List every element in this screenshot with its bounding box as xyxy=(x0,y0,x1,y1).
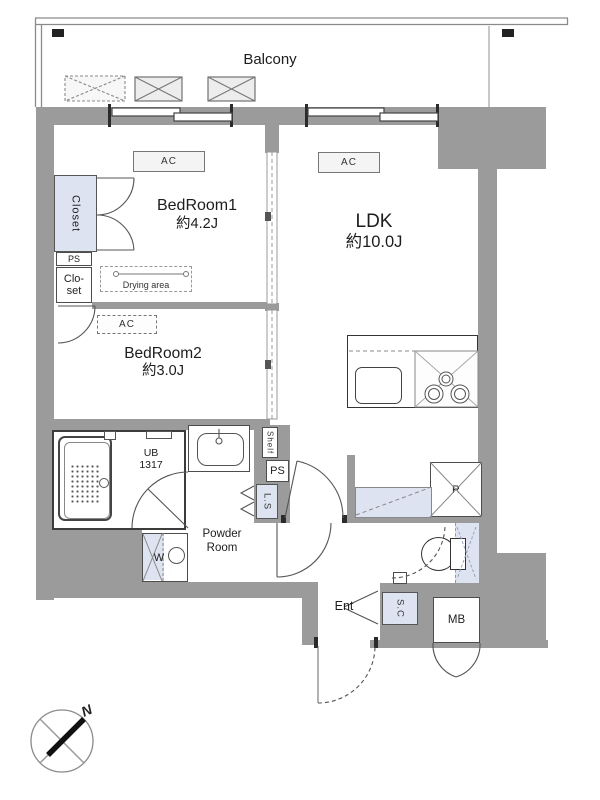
ldk-label: LDK 約10.0J xyxy=(314,211,434,253)
drying-area-box: Drying area xyxy=(100,266,192,292)
washer-label: W xyxy=(148,552,170,565)
ac-label: AC xyxy=(119,319,135,330)
hall-counter-shaded xyxy=(355,487,432,518)
wall-bedroom1-bottom xyxy=(92,302,270,309)
wall-top xyxy=(36,107,448,125)
closet-box: Closet xyxy=(54,175,97,252)
compass-icon: N xyxy=(31,701,95,772)
bath-shelf-fixture xyxy=(146,431,172,439)
bedroom1-label: BedRoom1 約4.2J xyxy=(117,197,277,233)
floor-plan: Closet PS Clo-set AC AC AC Drying area S… xyxy=(0,0,600,800)
ps-label: PS xyxy=(270,465,285,477)
bath-counter-fixture xyxy=(104,431,116,440)
ac-label: AC xyxy=(341,157,357,168)
entrance-jamb-tick xyxy=(374,637,378,648)
drying-area-label: Drying area xyxy=(101,280,191,290)
washbasin-vanity xyxy=(188,425,250,472)
ac-unit-bedroom1: AC xyxy=(133,151,205,172)
door-jamb-tick xyxy=(281,515,286,523)
toilet-tank xyxy=(450,538,466,570)
linen-storage-box: L.S xyxy=(256,484,278,519)
powder-room-line1: Powder xyxy=(190,528,254,542)
ac-unit-ldk: AC xyxy=(318,152,380,173)
ac-label: AC xyxy=(161,156,177,167)
bedroom2-label: BedRoom2 約3.0J xyxy=(83,345,243,380)
wall-bottom-left-band xyxy=(142,582,318,598)
window-tick xyxy=(230,104,233,127)
bedroom1-size: 約4.2J xyxy=(117,216,277,233)
bedroom2-size: 約3.0J xyxy=(83,363,243,380)
wall-bottom-left-block xyxy=(36,528,142,598)
bedroom1-name: BedRoom1 xyxy=(117,197,277,216)
ldk-name: LDK xyxy=(314,211,434,233)
unit-bath-label: UB 1317 xyxy=(122,447,180,472)
closet2-label-2: set xyxy=(64,285,84,297)
unit-bath-size: 1317 xyxy=(122,459,180,471)
kitchen-sink xyxy=(355,367,402,404)
refrigerator-space: R xyxy=(430,462,482,517)
balcony-ac-outdoor-units xyxy=(65,76,255,101)
wall-partition-stub-top xyxy=(265,125,279,153)
unit-bath-name: UB xyxy=(122,447,180,459)
bath-drain-icon xyxy=(99,478,109,488)
closet-label: Closet xyxy=(70,195,82,232)
closet2-box: Clo-set xyxy=(56,267,92,303)
pipe-space-box-2: PS xyxy=(266,460,289,482)
window-tick xyxy=(436,104,439,127)
entrance-jamb-tick xyxy=(314,637,318,648)
wall-partition-stub-mid xyxy=(265,303,279,311)
entrance-label: Ent xyxy=(323,599,365,614)
wall-top-right-block xyxy=(438,107,546,169)
compass-north-label: N xyxy=(79,701,96,720)
balcony-rail-hatch xyxy=(52,29,514,37)
sliding-partitions xyxy=(265,152,277,419)
ls-label: L.S xyxy=(262,493,273,510)
toilet-door-stub xyxy=(393,572,407,584)
ldk-size: 約10.0J xyxy=(314,233,434,252)
meter-box: MB xyxy=(433,597,480,643)
door-jamb-tick xyxy=(342,515,347,523)
shelf-box: Shelf xyxy=(262,427,278,458)
pipe-space-box: PS xyxy=(56,252,92,266)
bathtub xyxy=(58,436,112,521)
washer-drain-icon xyxy=(168,547,185,564)
meter-box-label: MB xyxy=(448,614,465,626)
window-tick xyxy=(108,104,111,127)
bedroom2-name: BedRoom2 xyxy=(83,345,243,363)
ps-label: PS xyxy=(68,254,80,264)
powder-room-line2: Room xyxy=(190,542,254,556)
shelf-label: Shelf xyxy=(266,431,275,454)
powder-room-label: Powder Room xyxy=(190,528,254,555)
shoe-closet-label: S.C xyxy=(395,599,406,618)
window-tick xyxy=(305,104,308,127)
washbasin-bowl xyxy=(197,433,244,466)
closet2-label-1: Clo- xyxy=(64,273,84,285)
bathtub-mat-dots xyxy=(70,464,100,504)
shoe-closet-box: S.C xyxy=(382,592,418,625)
balcony-label: Balcony xyxy=(210,51,330,69)
wall-entrance-left xyxy=(302,583,318,645)
wall-hall-stub xyxy=(347,455,355,523)
ac-unit-bedroom2: AC xyxy=(97,315,157,334)
refrigerator-label: R xyxy=(452,484,460,496)
